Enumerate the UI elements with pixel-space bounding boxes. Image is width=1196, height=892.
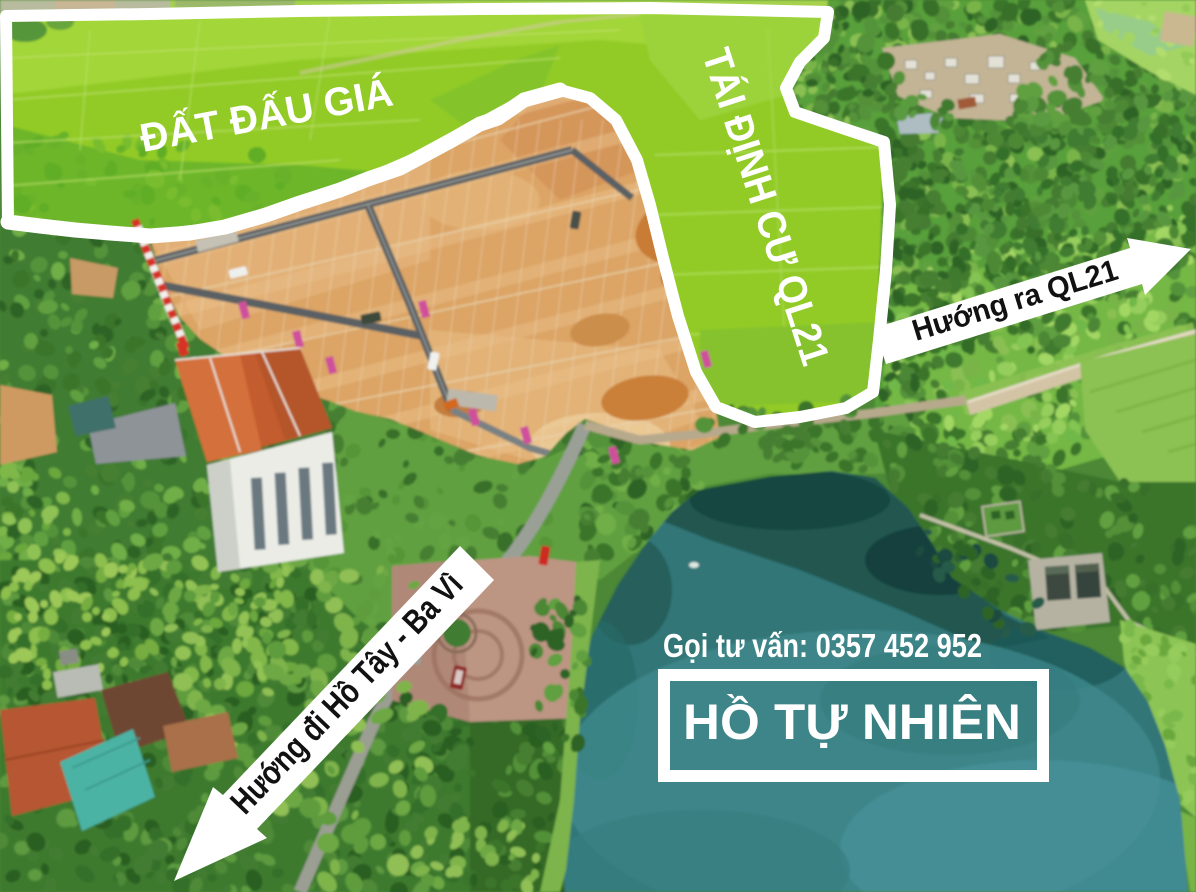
- svg-text:Gọi tư vấn: 0357 452 952: Gọi tư vấn: 0357 452 952: [663, 627, 982, 664]
- svg-text:HỒ TỰ NHIÊN: HỒ TỰ NHIÊN: [683, 694, 1021, 750]
